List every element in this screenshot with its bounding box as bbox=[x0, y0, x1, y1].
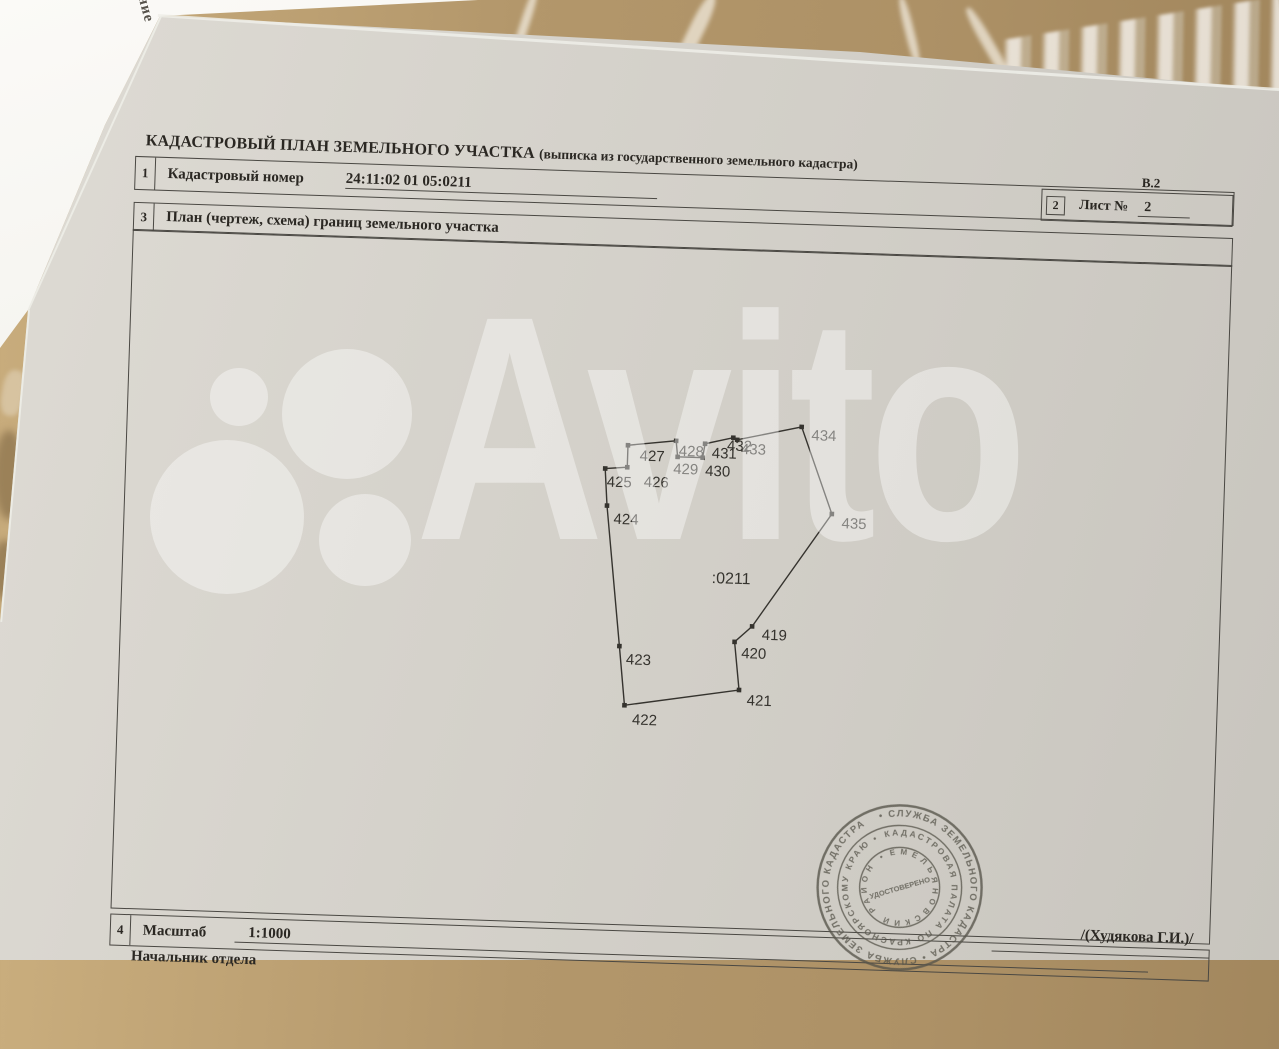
parcel-point-label-428: 428 bbox=[679, 443, 705, 461]
parcel-point-431 bbox=[703, 441, 708, 446]
parcel-point-419 bbox=[750, 624, 755, 629]
parcel-point-422 bbox=[622, 703, 627, 708]
parcel-point-429 bbox=[675, 455, 680, 460]
parcel-point-423 bbox=[617, 644, 622, 649]
parcel-point-426 bbox=[625, 465, 630, 470]
parcel-point-label-433: 433 bbox=[741, 441, 767, 459]
parcel-point-427 bbox=[626, 443, 631, 448]
parcel-point-label-424: 424 bbox=[613, 511, 639, 529]
parcel-point-434 bbox=[799, 425, 804, 430]
parcel-point-428 bbox=[674, 438, 679, 443]
parcel-point-label-421: 421 bbox=[746, 692, 772, 710]
sheet-value: 2 bbox=[1138, 199, 1191, 218]
parcel-outline-layer: 4224234244254264274284294304314324334344… bbox=[594, 418, 869, 736]
parcel-point-label-427: 427 bbox=[639, 448, 665, 466]
sheet-number-box: 2 Лист № 2 bbox=[1041, 189, 1234, 227]
stamp-center-text: УДОСТОВЕРЕНО bbox=[868, 875, 931, 901]
parcel-point-425 bbox=[603, 466, 608, 471]
parcel-point-421 bbox=[737, 688, 742, 693]
cadastral-number-value: 24:11:02 01 05:0211 bbox=[345, 171, 657, 199]
parcel-point-label-422: 422 bbox=[632, 712, 658, 730]
sheet-label: Лист № bbox=[1079, 198, 1129, 216]
row-number-cell: 1 bbox=[135, 157, 156, 190]
parcel-plan-svg: 4224234244254264274284294304314324334344… bbox=[110, 228, 1234, 1024]
parcel-cadastral-label: :0211 bbox=[711, 570, 750, 588]
parcel-point-label-425: 425 bbox=[606, 474, 632, 492]
document-content: КАДАСТРОВЫЙ ПЛАН ЗЕМЕЛЬНОГО УЧАСТКА (вып… bbox=[109, 132, 1267, 1049]
parcel-point-430 bbox=[700, 455, 705, 460]
parcel-point-420 bbox=[732, 639, 737, 644]
parcel-point-label-435: 435 bbox=[841, 515, 867, 533]
row-number-cell: 3 bbox=[134, 203, 155, 231]
parcel-point-435 bbox=[829, 512, 834, 517]
parcel-point-424 bbox=[605, 503, 610, 508]
sheet-box-number-cell: 2 bbox=[1046, 195, 1066, 215]
parcel-point-label-429: 429 bbox=[673, 461, 699, 479]
photo-of-document: { "photo": { "surface": "marble-table", … bbox=[0, 0, 1279, 960]
parcel-point-label-430: 430 bbox=[705, 463, 731, 481]
cadastral-number-label: Кадастровый номер bbox=[167, 165, 304, 186]
parcel-point-label-434: 434 bbox=[811, 427, 837, 445]
parcel-point-label-420: 420 bbox=[741, 645, 767, 663]
parcel-point-label-423: 423 bbox=[626, 651, 652, 669]
round-stamp: • СЛУЖБА ЗЕМЕЛЬНОГО КАДАСТРА • СЛУЖБА ЗЕ… bbox=[798, 786, 1001, 989]
parcel-point-label-419: 419 bbox=[762, 627, 788, 645]
parcel-point-433 bbox=[735, 437, 740, 442]
parcel-point-label-426: 426 bbox=[644, 474, 670, 492]
